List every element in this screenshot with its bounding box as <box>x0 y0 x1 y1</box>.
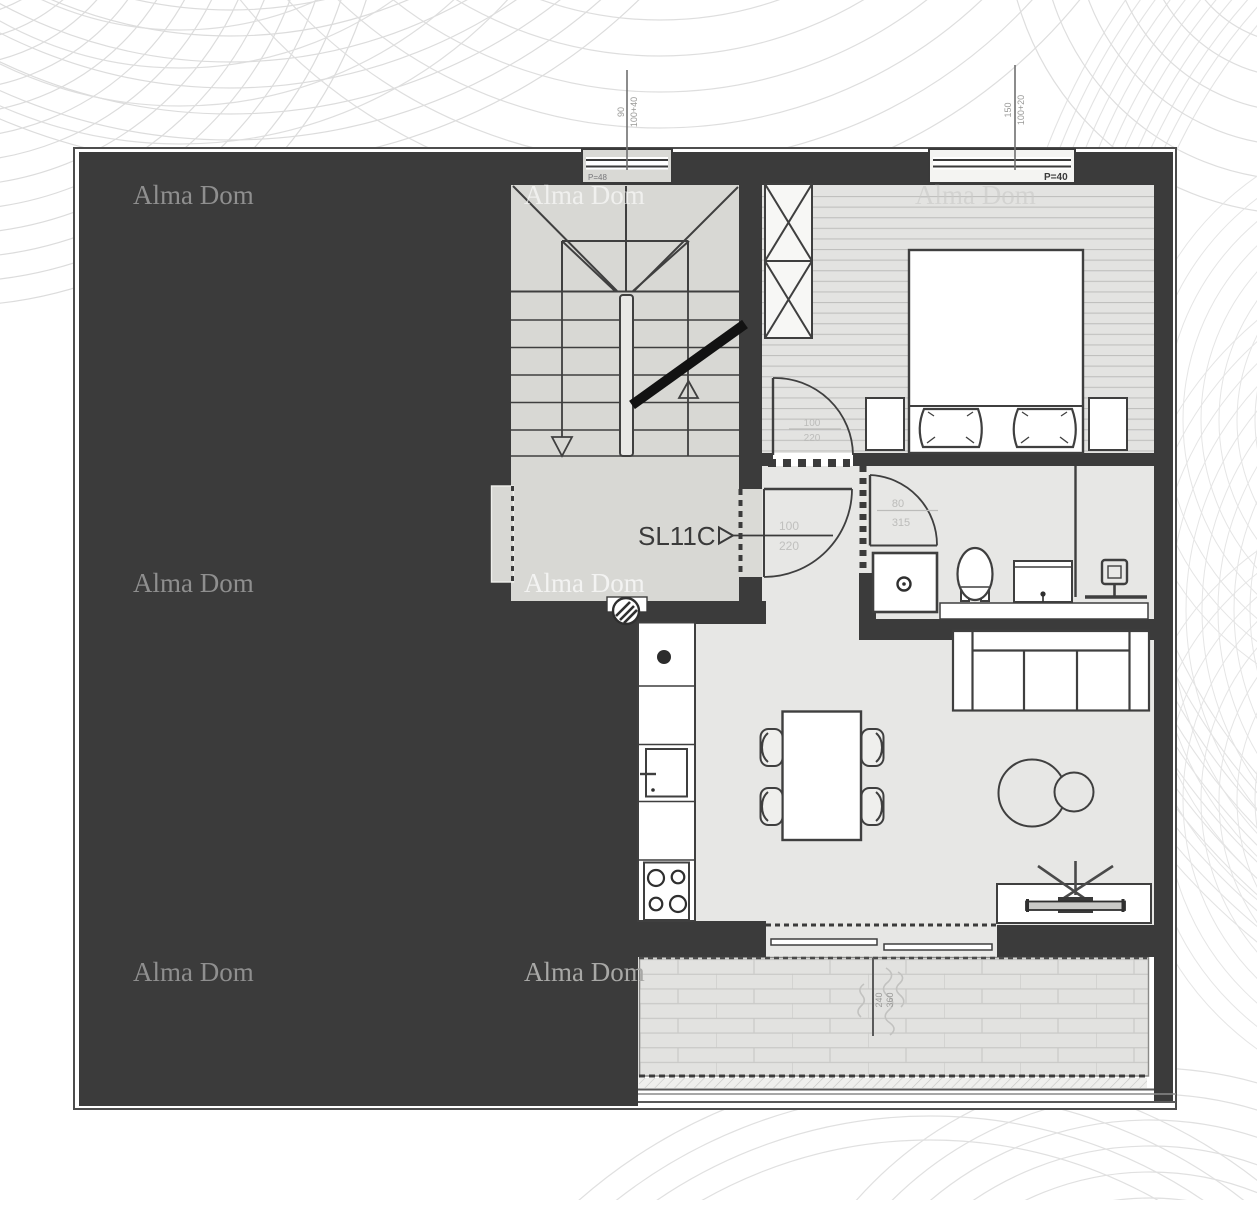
svg-text:Alma Dom: Alma Dom <box>133 180 254 210</box>
svg-text:Alma Dom: Alma Dom <box>524 568 645 598</box>
svg-text:100+40: 100+40 <box>629 97 639 127</box>
svg-text:Alma Dom: Alma Dom <box>524 180 645 210</box>
svg-text:SL11C: SL11C <box>638 521 716 551</box>
svg-text:100+20: 100+20 <box>1016 95 1026 125</box>
svg-text:100: 100 <box>804 418 821 429</box>
svg-text:Alma Dom: Alma Dom <box>133 957 254 987</box>
svg-text:220: 220 <box>779 539 799 553</box>
svg-text:80: 80 <box>892 498 904 510</box>
svg-text:150: 150 <box>1003 102 1013 117</box>
svg-text:315: 315 <box>892 517 910 529</box>
svg-text:360: 360 <box>885 992 895 1007</box>
svg-text:100: 100 <box>779 519 799 533</box>
svg-text:240: 240 <box>874 992 884 1007</box>
svg-text:Alma Dom: Alma Dom <box>524 957 645 987</box>
svg-text:Alma Dom: Alma Dom <box>915 180 1036 210</box>
svg-text:Alma Dom: Alma Dom <box>133 568 254 598</box>
svg-text:220: 220 <box>804 433 821 444</box>
svg-text:90: 90 <box>616 107 626 117</box>
svg-text:P=40: P=40 <box>1044 172 1068 183</box>
